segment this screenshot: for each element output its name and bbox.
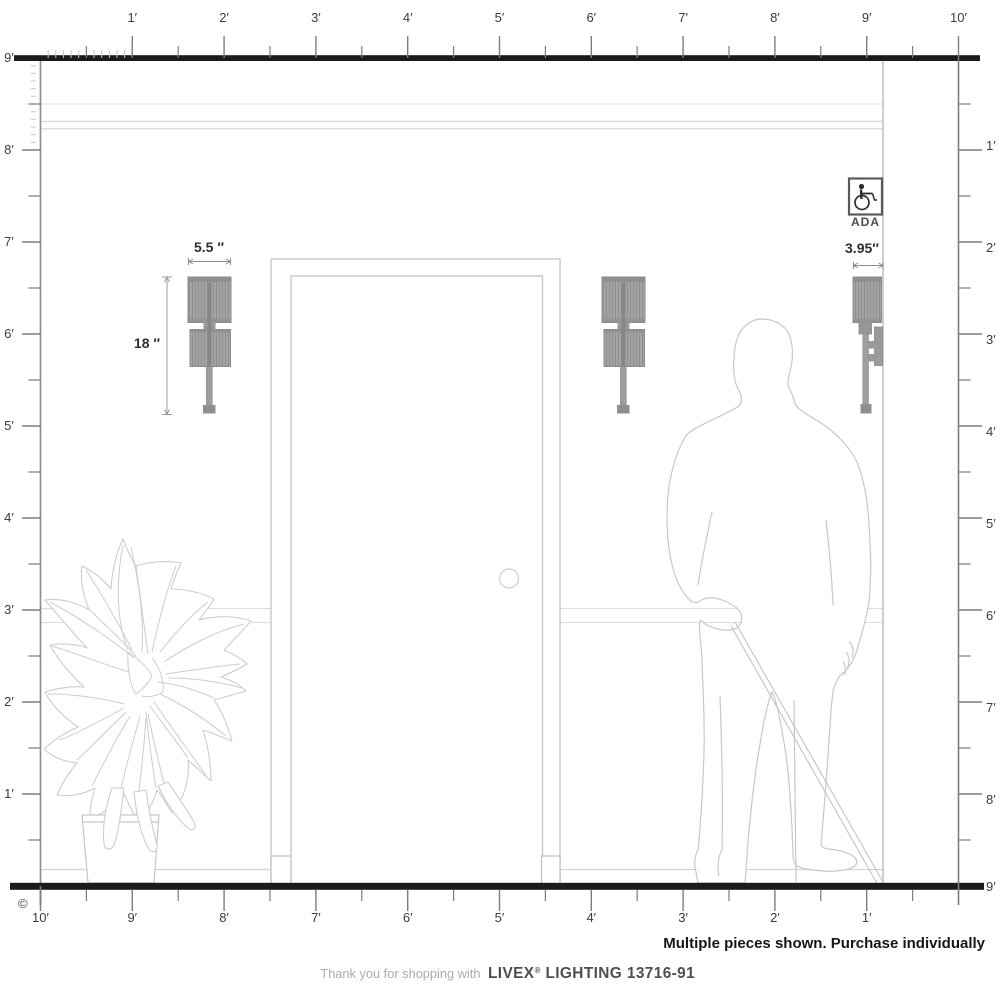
svg-text:9′: 9′ — [4, 50, 14, 65]
svg-text:4′: 4′ — [586, 910, 596, 925]
svg-text:3′: 3′ — [4, 602, 14, 617]
svg-text:6′: 6′ — [403, 910, 413, 925]
svg-text:4′: 4′ — [403, 10, 413, 25]
svg-text:3′: 3′ — [986, 332, 996, 347]
svg-text:LIVEX® LIGHTING 13716-91: LIVEX® LIGHTING 13716-91 — [488, 965, 695, 982]
svg-text:8′: 8′ — [219, 910, 229, 925]
svg-text:10′: 10′ — [950, 10, 967, 25]
svg-text:9′: 9′ — [127, 910, 137, 925]
svg-text:6′: 6′ — [4, 326, 14, 341]
svg-text:2′: 2′ — [4, 694, 14, 709]
svg-text:7′: 7′ — [4, 234, 14, 249]
svg-text:6′: 6′ — [986, 608, 996, 623]
svg-text:4′: 4′ — [986, 424, 996, 439]
svg-text:6′: 6′ — [586, 10, 596, 25]
svg-text:8′: 8′ — [986, 792, 996, 807]
svg-text:1′: 1′ — [4, 786, 14, 801]
svg-text:3′: 3′ — [678, 910, 688, 925]
svg-text:3.95″: 3.95″ — [845, 240, 879, 256]
svg-text:18 ″: 18 ″ — [134, 335, 160, 351]
svg-text:Multiple pieces shown. Purchas: Multiple pieces shown. Purchase individu… — [663, 935, 985, 952]
svg-text:4′: 4′ — [4, 510, 14, 525]
svg-text:10′: 10′ — [32, 910, 49, 925]
svg-text:7′: 7′ — [311, 910, 321, 925]
svg-text:7′: 7′ — [678, 10, 688, 25]
svg-text:5′: 5′ — [986, 516, 996, 531]
svg-text:5′: 5′ — [495, 910, 505, 925]
svg-text:8′: 8′ — [4, 142, 14, 157]
svg-text:2′: 2′ — [986, 240, 996, 255]
svg-text:©: © — [18, 896, 28, 911]
svg-text:7′: 7′ — [986, 700, 996, 715]
svg-text:3′: 3′ — [311, 10, 321, 25]
svg-text:1′: 1′ — [127, 10, 137, 25]
svg-text:1′: 1′ — [862, 910, 872, 925]
svg-text:ADA: ADA — [851, 215, 880, 229]
svg-text:2′: 2′ — [770, 910, 780, 925]
svg-text:5.5 ″: 5.5 ″ — [194, 239, 224, 255]
svg-text:9′: 9′ — [986, 879, 996, 894]
svg-text:9′: 9′ — [862, 10, 872, 25]
svg-text:8′: 8′ — [770, 10, 780, 25]
svg-text:Thank you for shopping with: Thank you for shopping with — [320, 966, 484, 981]
svg-text:2′: 2′ — [219, 10, 229, 25]
svg-text:5′: 5′ — [4, 418, 14, 433]
svg-text:5′: 5′ — [495, 10, 505, 25]
svg-text:1′: 1′ — [986, 138, 996, 153]
